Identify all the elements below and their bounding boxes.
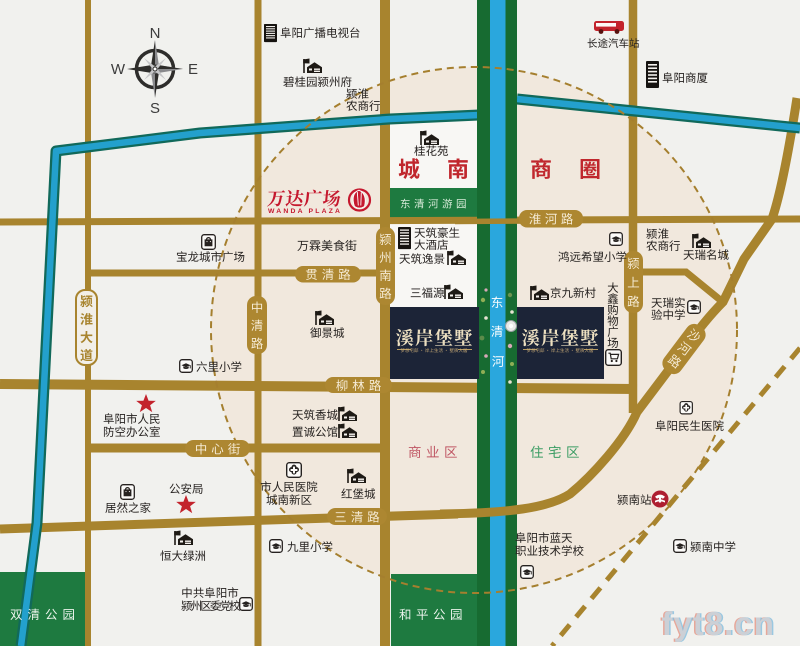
svg-text:fyt8.cn: fyt8.cn: [662, 605, 775, 642]
svg-text:S: S: [150, 100, 160, 117]
svg-text:E: E: [188, 61, 198, 78]
svg-text:N: N: [150, 25, 161, 42]
svg-text:W: W: [111, 61, 126, 78]
svg-text:WANDA PLAZA: WANDA PLAZA: [268, 208, 342, 215]
